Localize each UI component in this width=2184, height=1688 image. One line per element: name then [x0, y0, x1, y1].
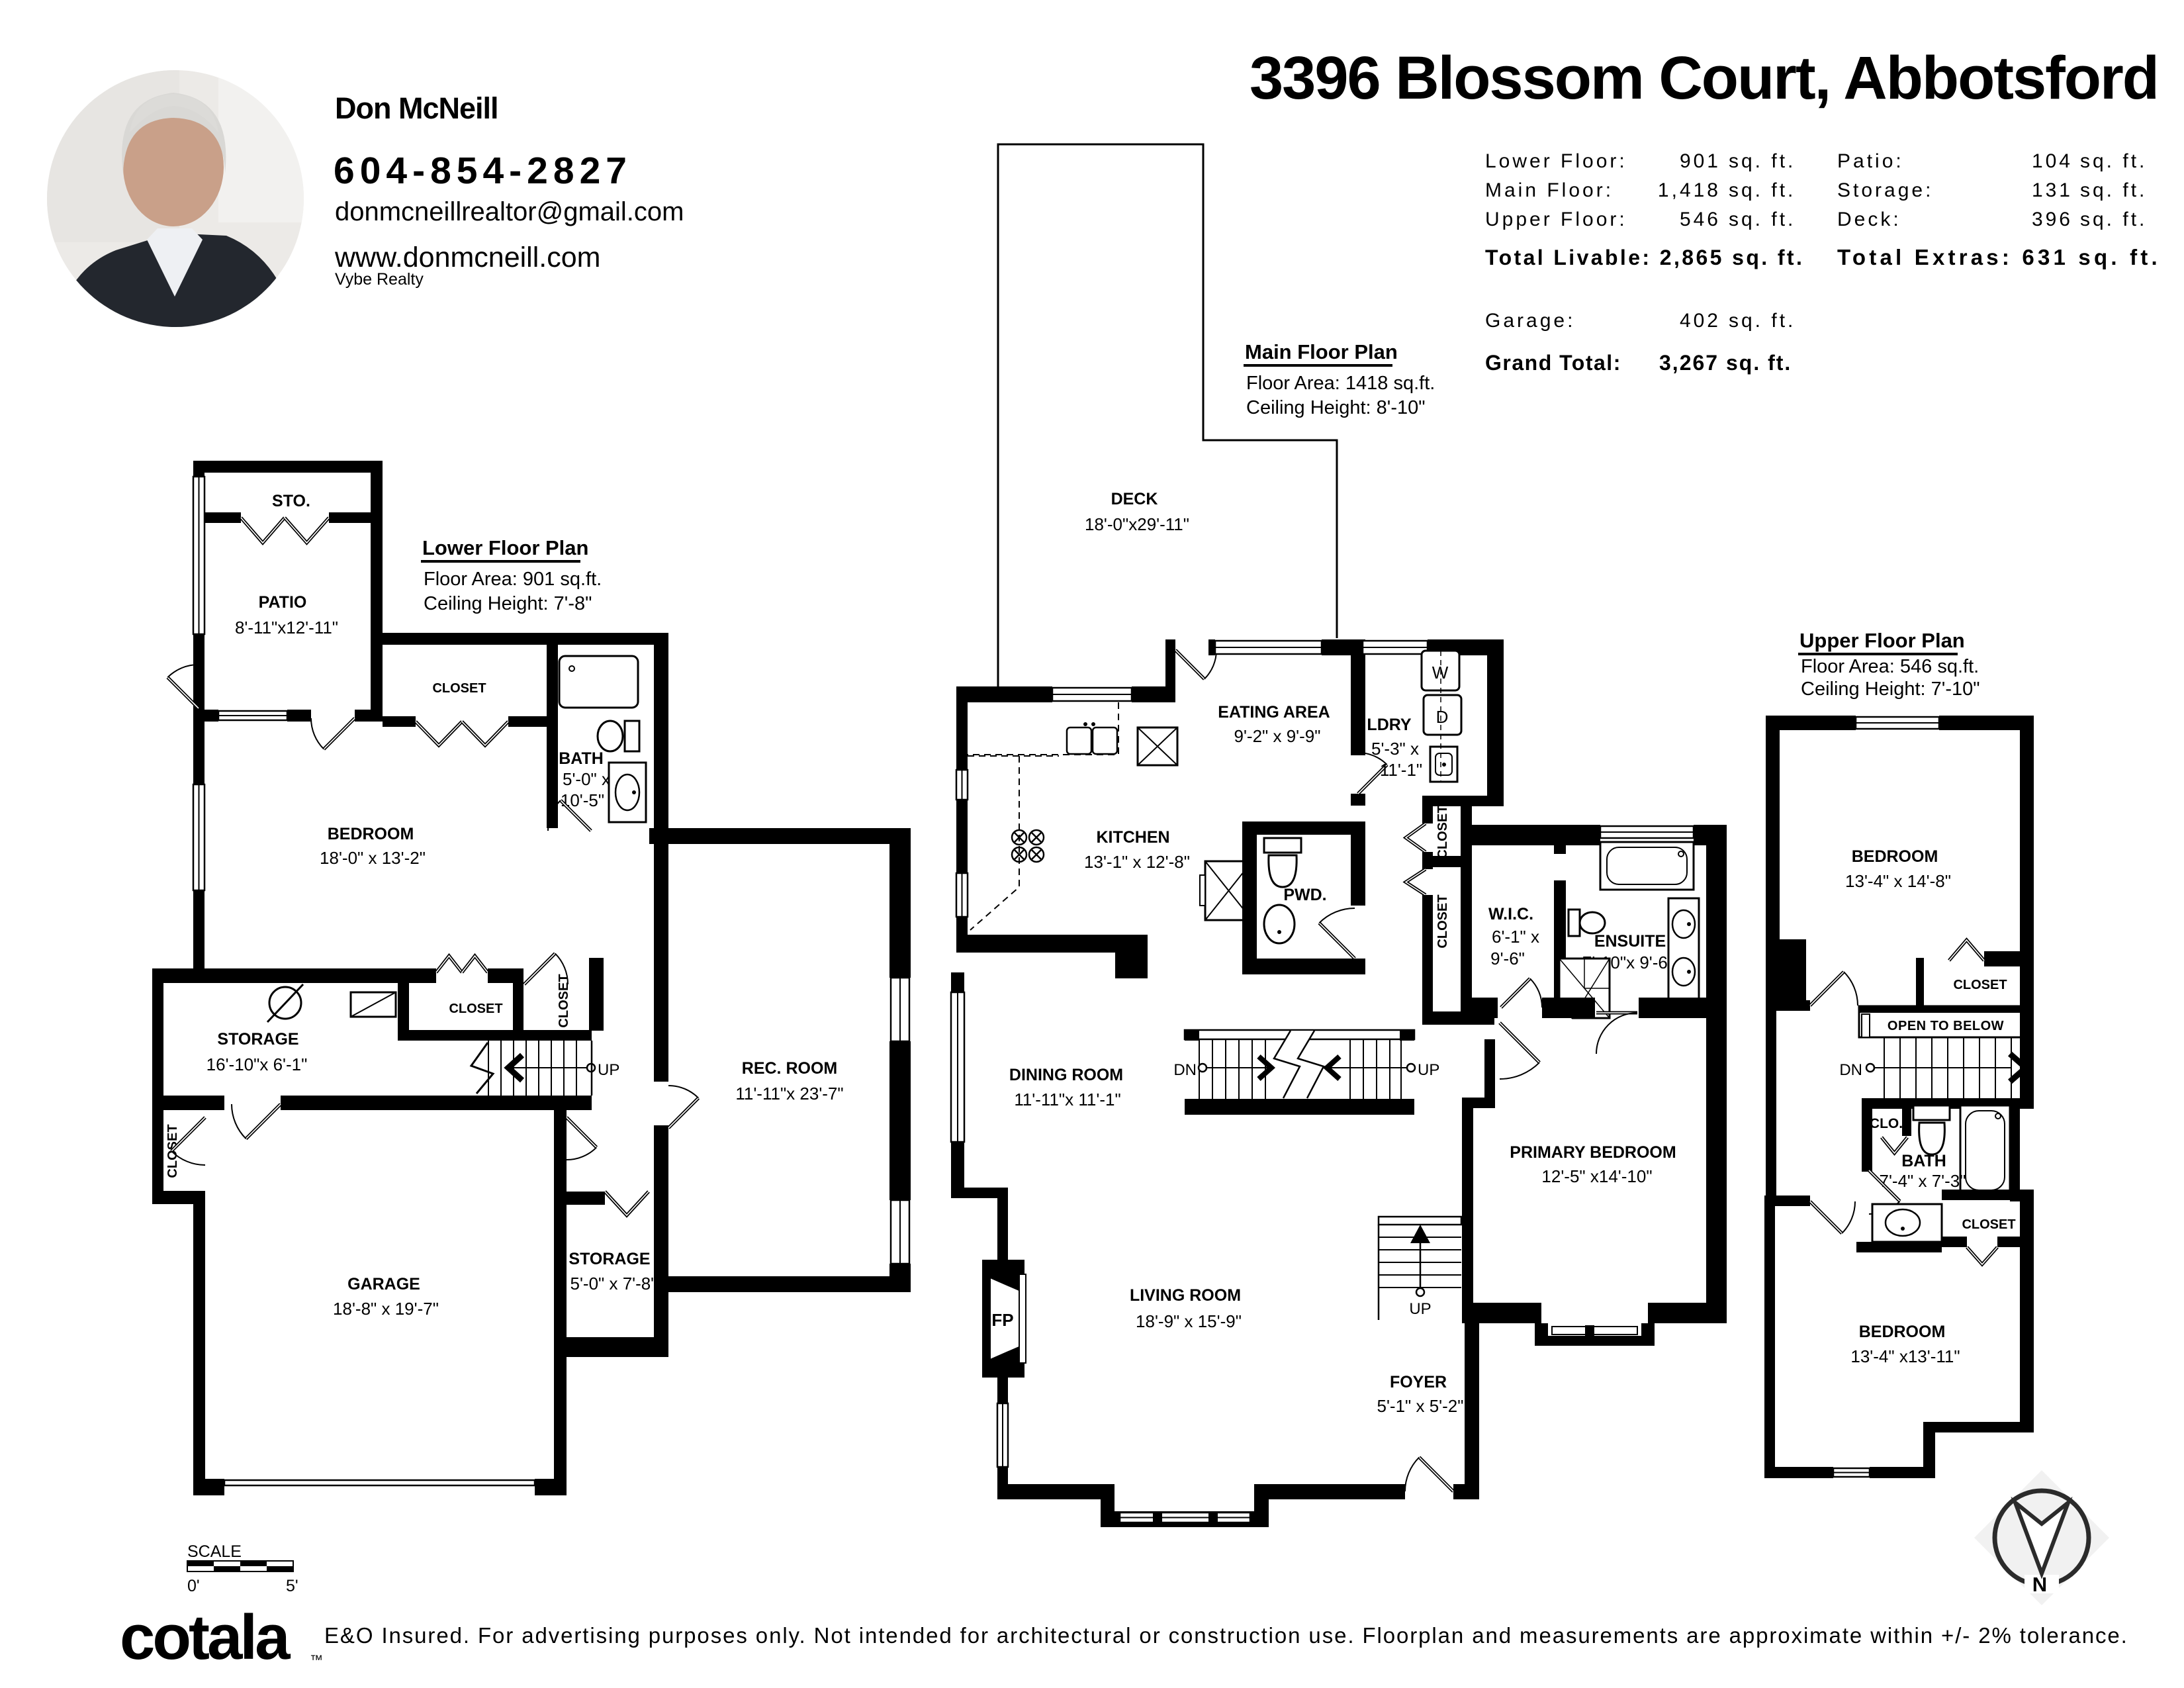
svg-text:Floor Area: 1418 sq.ft.: Floor Area: 1418 sq.ft.	[1246, 373, 1435, 394]
svg-text:donmcneillrealtor@gmail.com: donmcneillrealtor@gmail.com	[335, 197, 684, 226]
svg-text:BEDROOM: BEDROOM	[1859, 1323, 1946, 1341]
svg-text:LDRY: LDRY	[1367, 716, 1411, 734]
svg-text:UP: UP	[1409, 1300, 1431, 1318]
svg-text:E&O Insured. For advertising p: E&O Insured. For advertising purposes on…	[324, 1623, 2128, 1648]
svg-text:13'-4" x 14'-8": 13'-4" x 14'-8"	[1845, 871, 1951, 891]
svg-text:STO.: STO.	[272, 492, 310, 510]
svg-text:EATING AREA: EATING AREA	[1218, 703, 1330, 722]
svg-text:Floor Area: 901 sq.ft.: Floor Area: 901 sq.ft.	[424, 569, 602, 590]
svg-text:Don McNeill: Don McNeill	[335, 91, 498, 125]
svg-text:Upper Floor:: Upper Floor:	[1485, 209, 1627, 230]
svg-text:DN: DN	[1173, 1061, 1197, 1079]
svg-text:18'-0"x29'-11": 18'-0"x29'-11"	[1085, 514, 1189, 534]
svg-text:PRIMARY BEDROOM: PRIMARY BEDROOM	[1510, 1143, 1676, 1162]
svg-text:D: D	[1436, 707, 1449, 727]
svg-text:OPEN TO BELOW: OPEN TO BELOW	[1888, 1019, 2004, 1033]
svg-text:BEDROOM: BEDROOM	[1852, 847, 1938, 866]
svg-text:Total Livable: 2,865 sq. ft.: Total Livable: 2,865 sq. ft.	[1485, 246, 1804, 269]
svg-text:CLOSET: CLOSET	[1435, 805, 1450, 859]
svg-text:UP: UP	[1418, 1061, 1439, 1079]
svg-text:Deck:: Deck:	[1837, 209, 1901, 230]
svg-text:396: 396	[2032, 209, 2073, 230]
svg-text:STORAGE: STORAGE	[569, 1250, 650, 1268]
svg-text:N: N	[2032, 1573, 2047, 1596]
svg-text:sq. ft.: sq. ft.	[1729, 150, 1796, 172]
svg-text:Main Floor Plan: Main Floor Plan	[1245, 340, 1398, 363]
svg-text:13'-4" x13'-11": 13'-4" x13'-11"	[1850, 1346, 1960, 1366]
svg-text:PATIO: PATIO	[259, 593, 307, 612]
svg-text:Garage:: Garage:	[1485, 310, 1575, 332]
svg-text:18'-9" x 15'-9": 18'-9" x 15'-9"	[1136, 1311, 1242, 1331]
svg-text:Lower Floor Plan: Lower Floor Plan	[422, 536, 588, 559]
svg-text:GARAGE: GARAGE	[347, 1275, 420, 1293]
svg-text:BEDROOM: BEDROOM	[328, 825, 414, 843]
svg-text:DECK: DECK	[1111, 490, 1158, 508]
svg-text:5'-3" x: 5'-3" x	[1371, 739, 1419, 759]
svg-text:™: ™	[310, 1653, 323, 1667]
svg-text:BATH: BATH	[1901, 1152, 1946, 1170]
svg-text:11'-1": 11'-1"	[1380, 760, 1422, 780]
svg-text:16'-10"x 6'-1": 16'-10"x 6'-1"	[206, 1055, 308, 1074]
svg-text:3,267 sq. ft.: 3,267 sq. ft.	[1659, 351, 1792, 375]
svg-text:www.donmcneill.com: www.donmcneill.com	[334, 242, 600, 273]
svg-text:8'-11"x12'-11": 8'-11"x12'-11"	[235, 618, 338, 637]
svg-text:131: 131	[2032, 179, 2073, 201]
svg-text:Ceiling Height: 7'-8": Ceiling Height: 7'-8"	[424, 593, 592, 614]
svg-text:Total Extras: 631 sq. ft.: Total Extras: 631 sq. ft.	[1837, 245, 2161, 269]
svg-text:UP: UP	[598, 1061, 619, 1079]
svg-text:DN: DN	[1839, 1061, 1862, 1079]
svg-text:sq. ft.: sq. ft.	[1729, 179, 1796, 201]
svg-text:Grand Total:: Grand Total:	[1485, 351, 1621, 375]
svg-text:5'-0" x 7'-8": 5'-0" x 7'-8"	[570, 1274, 657, 1293]
svg-text:546: 546	[1680, 209, 1721, 230]
svg-text:901: 901	[1680, 150, 1721, 172]
svg-text:Main Floor:: Main Floor:	[1485, 179, 1614, 201]
svg-text:KITCHEN: KITCHEN	[1096, 828, 1169, 847]
svg-text:DINING ROOM: DINING ROOM	[1009, 1066, 1123, 1084]
svg-text:FOYER: FOYER	[1390, 1373, 1447, 1391]
svg-text:CLOSET: CLOSET	[1435, 894, 1450, 948]
svg-text:sq. ft.: sq. ft.	[1729, 209, 1796, 230]
svg-text:13'-1" x 12'-8": 13'-1" x 12'-8"	[1084, 852, 1190, 872]
svg-text:Storage:: Storage:	[1837, 179, 1933, 201]
svg-text:CLO.: CLO.	[1870, 1116, 1903, 1131]
svg-text:LIVING ROOM: LIVING ROOM	[1130, 1286, 1241, 1305]
svg-text:12'-5" x14'-10": 12'-5" x14'-10"	[1541, 1166, 1652, 1186]
svg-text:Patio:: Patio:	[1837, 150, 1904, 172]
svg-text:5': 5'	[286, 1577, 298, 1595]
svg-text:Vybe Realty: Vybe Realty	[335, 270, 424, 289]
svg-text:CLOSET: CLOSET	[449, 1002, 502, 1016]
svg-text:7'-4" x 7'-3": 7'-4" x 7'-3"	[1880, 1171, 1966, 1191]
svg-text:18'-8" x 19'-7": 18'-8" x 19'-7"	[333, 1299, 439, 1319]
svg-text:Upper Floor Plan: Upper Floor Plan	[1799, 629, 1965, 652]
svg-text:cotala: cotala	[120, 1602, 291, 1673]
svg-text:CLOSET: CLOSET	[1962, 1217, 2015, 1232]
svg-text:SCALE: SCALE	[187, 1542, 242, 1561]
svg-text:sq. ft.: sq. ft.	[2080, 209, 2147, 230]
svg-text:FP: FP	[991, 1310, 1013, 1330]
svg-text:5'-1" x 5'-2": 5'-1" x 5'-2"	[1377, 1396, 1464, 1416]
svg-text:Ceiling Height: 7'-10": Ceiling Height: 7'-10"	[1801, 679, 1980, 700]
svg-text:BATH: BATH	[559, 749, 604, 768]
svg-text:18'-0" x 13'-2": 18'-0" x 13'-2"	[320, 848, 426, 868]
svg-text:3396 Blossom Court, Abbotsford: 3396 Blossom Court, Abbotsford	[1250, 44, 2158, 112]
svg-text:104: 104	[2032, 150, 2073, 172]
svg-text:W: W	[1432, 663, 1449, 682]
svg-text:11'-11"x 23'-7": 11'-11"x 23'-7"	[735, 1084, 843, 1103]
svg-text:6'-1" x: 6'-1" x	[1492, 927, 1539, 947]
svg-text:PWD.: PWD.	[1283, 886, 1326, 904]
svg-text:W.I.C.: W.I.C.	[1488, 905, 1533, 923]
svg-text:604-854-2827: 604-854-2827	[334, 150, 632, 192]
svg-text:CLOSET: CLOSET	[1953, 978, 2007, 992]
svg-text:9'-6": 9'-6"	[1490, 949, 1525, 968]
svg-text:5'-0" x: 5'-0" x	[563, 769, 610, 789]
svg-text:sq. ft.: sq. ft.	[2080, 150, 2147, 172]
svg-text:Lower Floor:: Lower Floor:	[1485, 150, 1627, 172]
svg-text:sq. ft.: sq. ft.	[1729, 310, 1796, 332]
svg-text:0': 0'	[187, 1577, 200, 1595]
svg-text:402: 402	[1680, 310, 1721, 332]
svg-text:ENSUITE: ENSUITE	[1594, 932, 1666, 951]
svg-text:Floor Area: 546 sq.ft.: Floor Area: 546 sq.ft.	[1801, 656, 1979, 677]
svg-text:1,418: 1,418	[1658, 179, 1721, 201]
svg-text:CLOSET: CLOSET	[432, 681, 486, 696]
svg-text:CLOSET: CLOSET	[557, 974, 571, 1027]
svg-text:11'-11"x 11'-1": 11'-11"x 11'-1"	[1014, 1090, 1120, 1109]
svg-text:sq. ft.: sq. ft.	[2080, 179, 2147, 201]
svg-text:STORAGE: STORAGE	[217, 1030, 298, 1049]
svg-text:9'-2" x 9'-9": 9'-2" x 9'-9"	[1234, 726, 1321, 746]
svg-text:Ceiling Height: 8'-10": Ceiling Height: 8'-10"	[1246, 397, 1426, 418]
svg-text:REC. ROOM: REC. ROOM	[742, 1059, 837, 1078]
